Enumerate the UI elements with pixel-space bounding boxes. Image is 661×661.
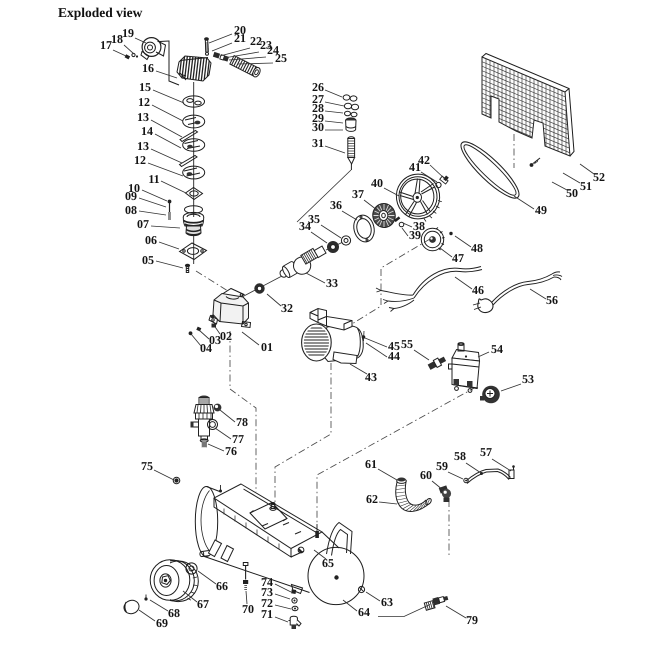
svg-text:78: 78 (236, 415, 248, 429)
svg-text:16: 16 (142, 61, 154, 75)
svg-text:47: 47 (452, 251, 464, 265)
svg-text:32: 32 (281, 301, 293, 315)
svg-text:30: 30 (312, 120, 324, 134)
svg-text:Exploded view: Exploded view (58, 5, 143, 20)
svg-text:19: 19 (122, 26, 134, 40)
svg-text:49: 49 (535, 203, 547, 217)
svg-text:12: 12 (134, 153, 146, 167)
svg-text:63: 63 (381, 595, 393, 609)
svg-text:01: 01 (261, 340, 273, 354)
svg-text:57: 57 (480, 445, 492, 459)
svg-text:13: 13 (137, 139, 149, 153)
svg-text:05: 05 (142, 253, 154, 267)
svg-text:10: 10 (128, 181, 140, 195)
svg-text:15: 15 (139, 80, 151, 94)
svg-text:65: 65 (322, 556, 334, 570)
svg-text:77: 77 (232, 432, 244, 446)
svg-text:76: 76 (225, 444, 237, 458)
svg-text:39: 39 (409, 228, 421, 242)
svg-text:67: 67 (197, 597, 209, 611)
svg-text:55: 55 (401, 337, 413, 351)
svg-text:37: 37 (352, 187, 364, 201)
svg-text:48: 48 (471, 241, 483, 255)
svg-text:13: 13 (137, 110, 149, 124)
svg-text:33: 33 (326, 276, 338, 290)
svg-text:79: 79 (466, 613, 478, 627)
svg-text:08: 08 (125, 203, 137, 217)
svg-text:52: 52 (593, 170, 605, 184)
svg-text:07: 07 (137, 217, 149, 231)
svg-text:25: 25 (275, 51, 287, 65)
svg-text:74: 74 (261, 575, 273, 589)
svg-text:62: 62 (366, 492, 378, 506)
svg-text:70: 70 (242, 602, 254, 616)
svg-text:45: 45 (388, 339, 400, 353)
svg-text:04: 04 (200, 341, 212, 355)
svg-text:54: 54 (491, 342, 503, 356)
svg-text:35: 35 (308, 212, 320, 226)
svg-text:50: 50 (566, 186, 578, 200)
svg-text:60: 60 (420, 468, 432, 482)
svg-text:51: 51 (580, 179, 592, 193)
svg-text:12: 12 (138, 95, 150, 109)
svg-text:46: 46 (472, 283, 484, 297)
svg-text:64: 64 (358, 605, 370, 619)
svg-text:61: 61 (365, 457, 377, 471)
svg-text:68: 68 (168, 606, 180, 620)
svg-text:59: 59 (436, 459, 448, 473)
svg-text:36: 36 (330, 198, 342, 212)
svg-text:66: 66 (216, 579, 228, 593)
svg-text:42: 42 (418, 153, 430, 167)
svg-text:02: 02 (220, 329, 232, 343)
svg-text:56: 56 (546, 293, 558, 307)
svg-text:06: 06 (145, 233, 157, 247)
svg-text:40: 40 (371, 176, 383, 190)
svg-text:53: 53 (522, 372, 534, 386)
svg-text:21: 21 (234, 31, 246, 45)
svg-text:58: 58 (454, 449, 466, 463)
svg-text:11: 11 (148, 172, 159, 186)
svg-text:69: 69 (156, 616, 168, 630)
svg-text:31: 31 (312, 136, 324, 150)
svg-text:75: 75 (141, 459, 153, 473)
svg-text:14: 14 (141, 124, 153, 138)
svg-text:43: 43 (365, 370, 377, 384)
